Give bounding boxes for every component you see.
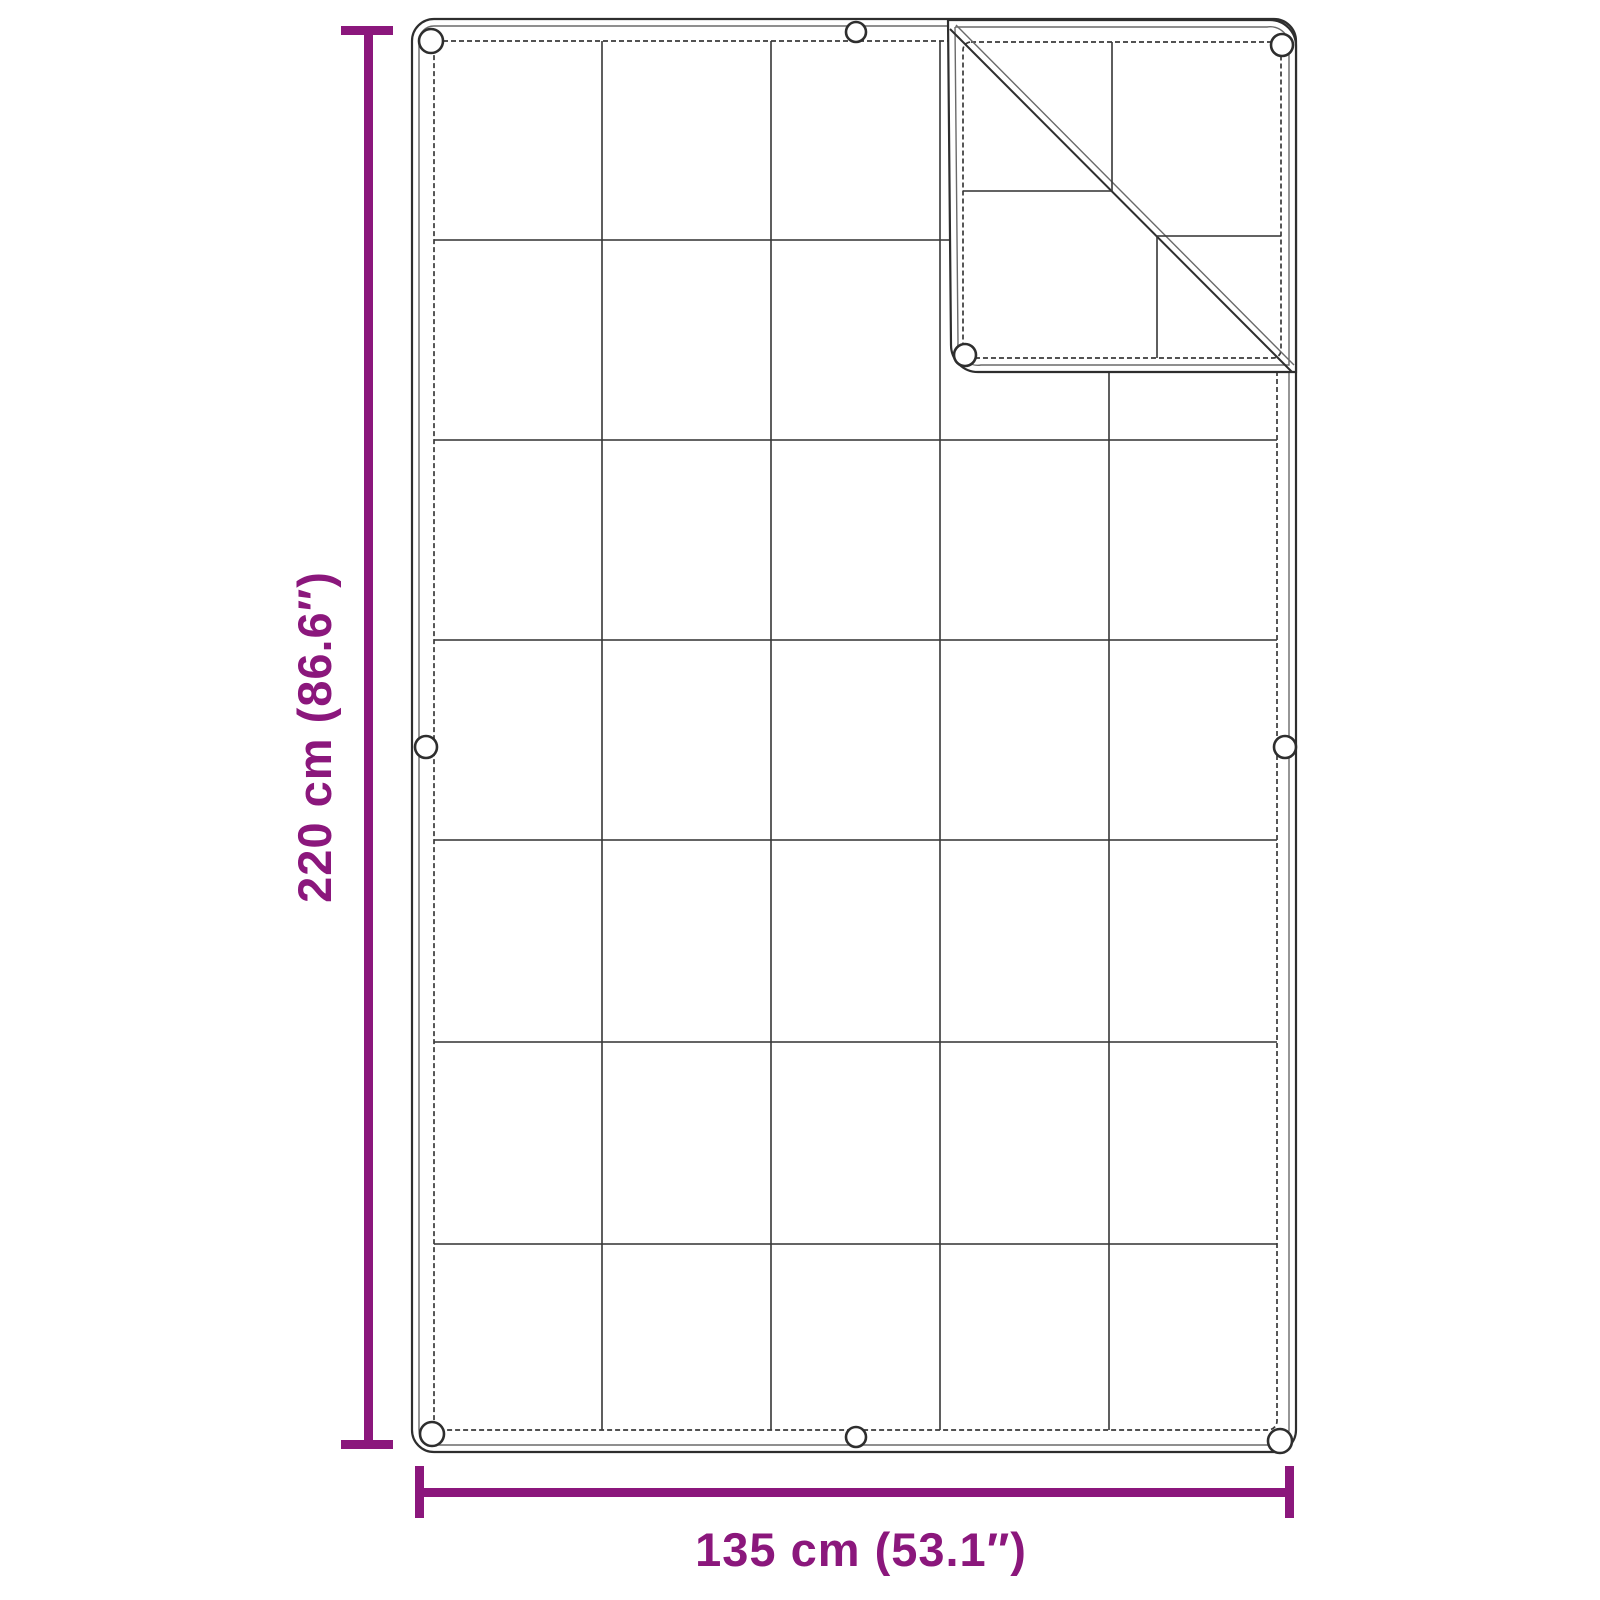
grommet-icon bbox=[1271, 34, 1293, 56]
grommet-icon bbox=[846, 1427, 866, 1447]
height-dimension-bottom-cap bbox=[341, 1440, 393, 1449]
height-dimension: 220 cm (86.6″) bbox=[288, 26, 393, 1449]
height-dimension-line bbox=[364, 30, 373, 1444]
tarp-dimension-drawing: 220 cm (86.6″) 135 cm (53.1″) bbox=[0, 0, 1600, 1600]
height-dimension-label: 220 cm (86.6″) bbox=[288, 571, 341, 903]
grommet-icon bbox=[419, 29, 443, 53]
width-dimension: 135 cm (53.1″) bbox=[415, 1466, 1294, 1576]
grommet-icon bbox=[1274, 736, 1296, 758]
width-dimension-right-cap bbox=[1285, 1466, 1294, 1518]
grommet-icon bbox=[1268, 1429, 1292, 1453]
tarp-grid-horizontal-seams bbox=[434, 240, 1277, 1244]
grommet-icon bbox=[954, 344, 976, 366]
grommet-icon bbox=[846, 22, 866, 42]
width-dimension-line bbox=[419, 1488, 1289, 1497]
folded-corner-flap bbox=[948, 20, 1296, 372]
grommet-icon bbox=[420, 1422, 444, 1446]
grommet-icon bbox=[415, 736, 437, 758]
flap-outline bbox=[948, 20, 1296, 372]
dimension-diagram: 220 cm (86.6″) 135 cm (53.1″) bbox=[0, 0, 1600, 1600]
width-dimension-label: 135 cm (53.1″) bbox=[695, 1523, 1027, 1576]
